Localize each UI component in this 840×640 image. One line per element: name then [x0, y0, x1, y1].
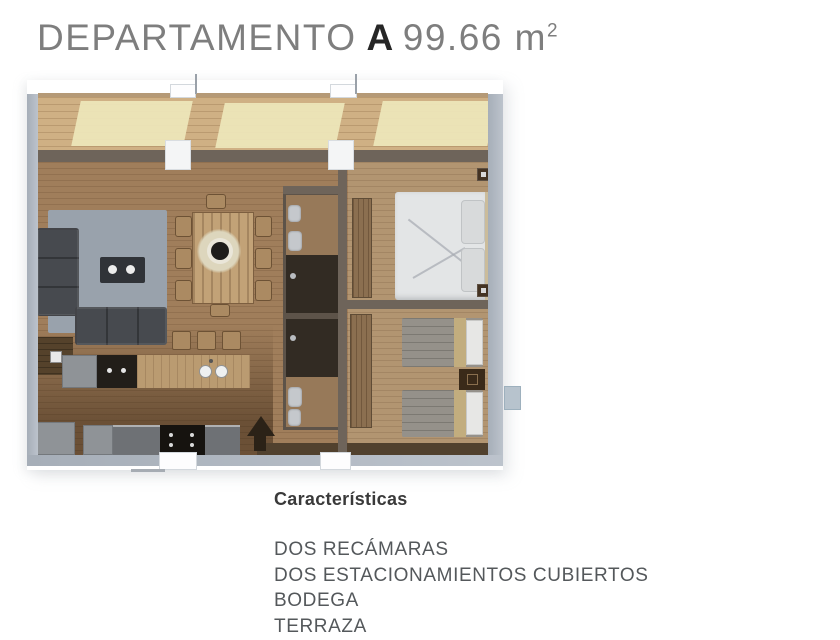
dining-chair [175, 280, 192, 301]
dining-chair [255, 248, 272, 269]
decor-plate [126, 265, 135, 274]
bathroom-sink [288, 409, 301, 426]
toilet [288, 387, 302, 407]
shower [286, 319, 339, 377]
master-bedroom-wall [283, 186, 347, 194]
exterior-unit [504, 386, 521, 410]
floorplan-image [27, 80, 503, 470]
pillow [466, 392, 483, 435]
shower [286, 255, 339, 313]
kitchen-sink [215, 365, 228, 378]
kitchen-counter-run [35, 420, 240, 455]
bed-blanket [402, 390, 454, 437]
sofa [37, 228, 79, 316]
toilet [288, 231, 302, 251]
bed-runner [454, 390, 466, 437]
bed-runner [454, 318, 466, 367]
entry-arrow-stem [254, 436, 266, 451]
nightstand [459, 369, 485, 390]
kitchen-stool [172, 331, 191, 350]
burner-dot [169, 433, 173, 437]
top-wall [38, 93, 488, 97]
terrace [38, 97, 488, 150]
pillow [461, 200, 485, 244]
dining-chair [210, 304, 230, 317]
title-area-superscript: 2 [547, 20, 559, 41]
feature-item: BODEGA [274, 588, 649, 614]
terrace-door [165, 140, 191, 170]
twin-bed [402, 390, 483, 437]
burner-dot [190, 433, 194, 437]
master-wardrobe [352, 198, 372, 298]
table-centerpiece [211, 242, 229, 260]
title-unit-letter: A [367, 17, 395, 58]
left-exterior-wall [27, 94, 38, 466]
cooktop-burner [121, 368, 126, 373]
window-jamb [170, 84, 196, 98]
bathrooms-block [283, 192, 342, 430]
oven-range [160, 425, 205, 455]
island-cabinet [62, 355, 97, 388]
cooktop-burner [107, 368, 112, 373]
terrace-door [328, 140, 354, 170]
bottom-exterior-wall [27, 455, 503, 466]
dining-chair [206, 194, 226, 209]
shower-head [290, 273, 296, 279]
kitchen-stool [222, 331, 241, 350]
entry-door-opening [320, 452, 351, 470]
title-building: DEPARTAMENTO [37, 17, 357, 58]
page-title: DEPARTAMENTOA99.66 m2 [37, 17, 559, 59]
bed-fold [408, 219, 464, 264]
bedroom-divider-wall [338, 300, 503, 309]
dimension-dash [131, 469, 165, 472]
coffee-table [100, 257, 145, 283]
entry-door-opening [159, 452, 197, 470]
entry-arrow-icon [247, 416, 275, 436]
bedroom2-wardrobe [350, 314, 372, 428]
dining-chair [175, 248, 192, 269]
kitchen-stool [197, 331, 216, 350]
features-list: DOS RECÁMARAS DOS ESTACIONAMIENTOS CUBIE… [274, 537, 649, 640]
island-counter [137, 355, 250, 388]
cabinet [83, 425, 113, 455]
features-section: Características DOS RECÁMARAS DOS ESTACI… [274, 489, 649, 640]
burner-dot [190, 443, 194, 447]
sunlight-patch [215, 103, 345, 148]
twin-bed [402, 318, 483, 367]
window-jamb [330, 84, 357, 98]
bed-fold [413, 247, 466, 279]
cooktop [97, 355, 137, 388]
bathroom-sink [288, 205, 301, 222]
faucet [209, 359, 213, 363]
bottom-wood-wall [257, 443, 488, 455]
terrace-wall [38, 150, 488, 162]
feature-item: DOS RECÁMARAS [274, 537, 649, 563]
wall-tick-mark [195, 74, 197, 94]
features-heading: Características [274, 489, 649, 510]
wall-tick-mark [355, 74, 357, 94]
feature-item: TERRAZA [274, 614, 649, 640]
decor-plate [108, 265, 117, 274]
shower-head [290, 335, 296, 341]
dining-chair [255, 280, 272, 301]
dining-chair [255, 216, 272, 237]
kitchen-sink [199, 365, 212, 378]
sunlight-patch [373, 101, 488, 146]
kitchen-island [62, 355, 250, 388]
refrigerator [35, 422, 75, 455]
feature-item: DOS ESTACIONAMIENTOS CUBIERTOS [274, 563, 649, 589]
pillow [466, 320, 483, 365]
bed-blanket [402, 318, 454, 367]
side-table-device [50, 351, 62, 363]
title-area: 99.66 m [403, 17, 547, 58]
dining-chair [175, 216, 192, 237]
loveseat [75, 307, 167, 345]
burner-dot [169, 443, 173, 447]
right-exterior-wall [488, 94, 503, 466]
